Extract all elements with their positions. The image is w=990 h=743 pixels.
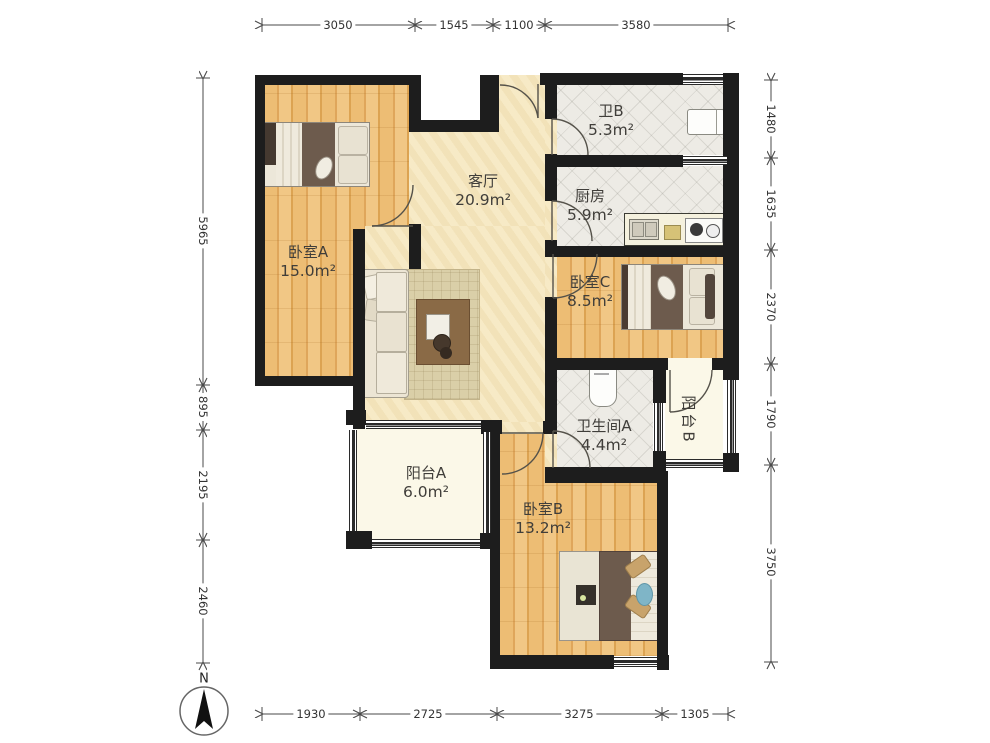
wall-segment bbox=[255, 75, 265, 386]
bathtub bbox=[687, 109, 725, 135]
window bbox=[727, 380, 736, 453]
wall-segment bbox=[255, 75, 421, 85]
dim-top-4: 3580 bbox=[618, 18, 653, 32]
dim-right-3: 2370 bbox=[764, 289, 778, 324]
sofa-cushion bbox=[376, 312, 407, 352]
dim-left-4: 2460 bbox=[196, 583, 210, 618]
dim-bottom-4: 1305 bbox=[677, 707, 712, 721]
north-compass bbox=[180, 687, 228, 735]
room-label-kitchen: 厨房 5.9m² bbox=[567, 187, 613, 225]
window bbox=[614, 657, 657, 667]
balcony-window bbox=[366, 420, 481, 429]
wall-segment bbox=[545, 358, 668, 370]
dim-right-2: 1635 bbox=[764, 186, 778, 221]
room-label-balcony-a: 阳台A 6.0m² bbox=[403, 464, 449, 502]
bed-bedroom-b bbox=[599, 551, 660, 641]
decor-bowl bbox=[440, 347, 452, 359]
dim-top-1: 3050 bbox=[320, 18, 355, 32]
window bbox=[654, 403, 663, 451]
wall-segment bbox=[545, 155, 683, 167]
dim-left-2: 895 bbox=[196, 393, 210, 421]
window bbox=[683, 74, 723, 85]
bed-sheet bbox=[628, 265, 651, 329]
doorway-floor bbox=[545, 118, 557, 155]
tub-divider bbox=[716, 110, 718, 134]
wall-segment bbox=[480, 75, 499, 132]
compass-needle bbox=[195, 689, 213, 729]
bed-headboard bbox=[264, 123, 276, 165]
wall-segment bbox=[490, 432, 500, 668]
cutting-board bbox=[664, 225, 681, 240]
window bbox=[666, 459, 723, 468]
wall-segment bbox=[346, 410, 366, 425]
balcony-window bbox=[372, 539, 480, 548]
room-label-bedroom-b: 卧室B 13.2m² bbox=[515, 500, 571, 538]
bed-pillow bbox=[338, 155, 368, 184]
wall-segment bbox=[723, 75, 739, 380]
doorway-floor bbox=[545, 430, 557, 468]
bed-bedroom-a bbox=[263, 122, 370, 187]
doorway-floor bbox=[502, 422, 543, 434]
wall-segment bbox=[545, 84, 557, 119]
bed-round-pillow bbox=[636, 583, 653, 606]
cooktop bbox=[685, 218, 723, 243]
balcony-window bbox=[483, 432, 491, 533]
doorway-floor bbox=[668, 358, 712, 370]
doorway-floor bbox=[545, 200, 557, 241]
bed-bedroom-c bbox=[621, 264, 725, 330]
dim-right-4: 1790 bbox=[764, 396, 778, 431]
tv bbox=[576, 585, 596, 605]
wall-segment bbox=[653, 451, 666, 472]
wall-segment bbox=[545, 246, 739, 257]
wall-segment bbox=[653, 366, 666, 403]
room-label-bedroom-c: 卧室C 8.5m² bbox=[567, 273, 613, 311]
wall-segment bbox=[540, 73, 683, 85]
room-label-bedroom-a: 卧室A 15.0m² bbox=[280, 243, 336, 281]
dim-bottom-1: 1930 bbox=[293, 707, 328, 721]
coffee-table bbox=[416, 299, 470, 365]
bed-pillow bbox=[338, 126, 368, 155]
room-label-balcony-b: 阳台B bbox=[679, 395, 700, 444]
sofa-cushion bbox=[376, 272, 407, 312]
dim-right-5: 3750 bbox=[764, 544, 778, 579]
room-label-bath-b: 卫B 5.3m² bbox=[588, 102, 634, 140]
wardrobe bbox=[559, 551, 603, 641]
wall-segment bbox=[543, 421, 557, 434]
sink-basin bbox=[632, 222, 644, 237]
doorway-floor bbox=[545, 253, 557, 298]
sink-basin bbox=[645, 222, 657, 237]
bed-accent-pillow bbox=[705, 274, 715, 319]
dim-top-2: 1545 bbox=[436, 18, 471, 32]
room-label-bath-a: 卫生间A 4.4m² bbox=[576, 417, 631, 455]
compass-north-label: N bbox=[199, 672, 209, 687]
floor-plan-canvas: 卧室A 15.0m² 客厅 20.9m² 卫B 5.3m² 厨房 5.9m² 卧… bbox=[0, 0, 990, 743]
kitchen-counter bbox=[624, 213, 726, 246]
room-label-living: 客厅 20.9m² bbox=[455, 172, 511, 210]
wall-segment bbox=[723, 453, 739, 472]
wall-segment bbox=[346, 531, 372, 549]
kitchen-sink bbox=[629, 219, 659, 240]
wall-segment bbox=[255, 376, 365, 386]
wall-segment bbox=[480, 533, 497, 549]
wall-segment bbox=[545, 297, 557, 431]
shower-unit bbox=[589, 369, 617, 407]
wall-segment bbox=[409, 224, 421, 269]
tv-light bbox=[580, 595, 586, 601]
wall-segment bbox=[490, 655, 614, 669]
dim-right-1: 1480 bbox=[764, 101, 778, 136]
dim-left-1: 5965 bbox=[196, 213, 210, 248]
burner bbox=[690, 223, 703, 236]
sofa-cushion bbox=[376, 352, 407, 394]
dim-bottom-2: 2725 bbox=[410, 707, 445, 721]
wall-segment bbox=[545, 467, 662, 483]
dim-left-3: 2195 bbox=[196, 467, 210, 502]
bed-sheet bbox=[276, 123, 302, 186]
burner bbox=[706, 224, 720, 238]
wall-segment bbox=[712, 358, 739, 370]
dim-top-3: 1100 bbox=[501, 18, 536, 32]
wall-segment bbox=[545, 154, 557, 201]
wall-segment bbox=[545, 240, 557, 254]
living-room-floor bbox=[498, 75, 545, 133]
balcony-window bbox=[349, 430, 357, 531]
shower-detail bbox=[594, 373, 609, 375]
wall-segment bbox=[353, 229, 365, 429]
wall-segment bbox=[657, 471, 668, 669]
dim-bottom-3: 3275 bbox=[561, 707, 596, 721]
sofa bbox=[361, 269, 409, 398]
window bbox=[683, 156, 727, 165]
